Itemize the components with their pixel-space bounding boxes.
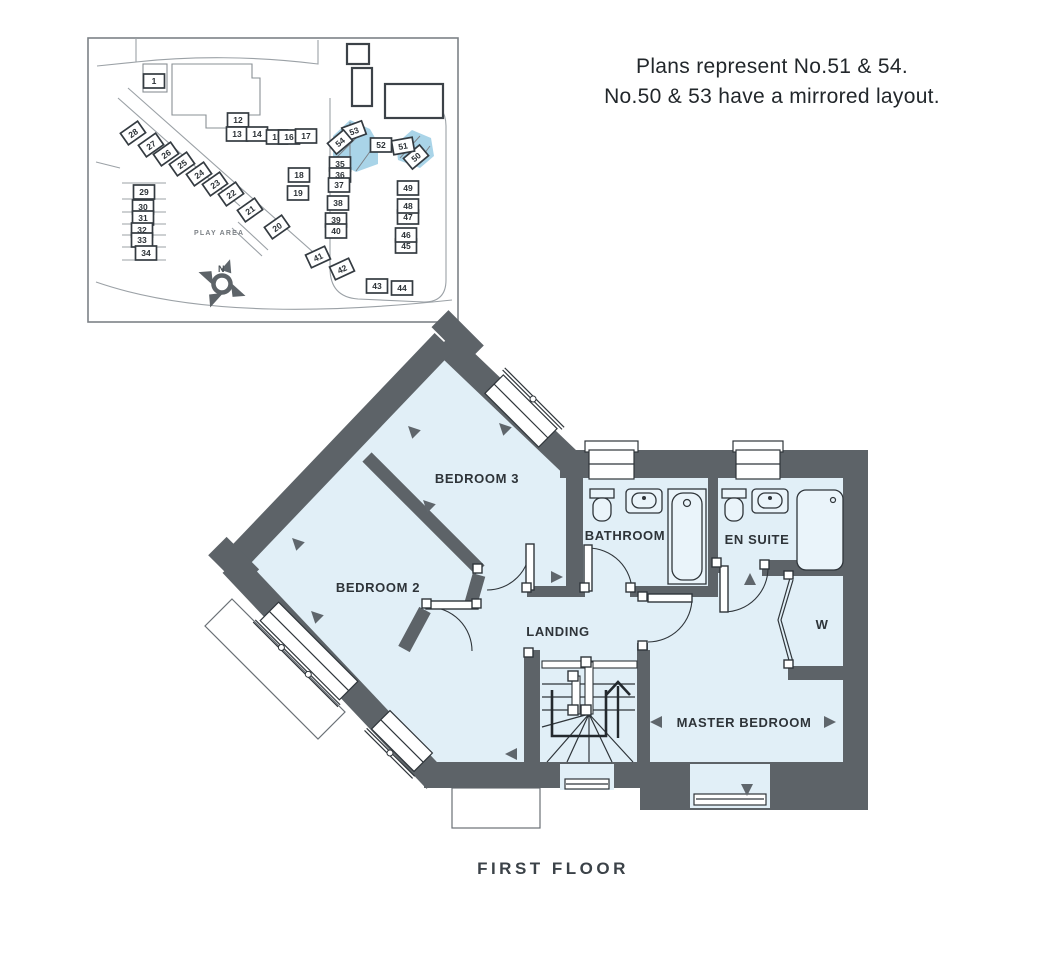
ensuite-toilet: [722, 489, 746, 521]
svg-text:48: 48: [403, 201, 413, 211]
svg-text:17: 17: [301, 131, 311, 141]
note-line-1: Plans represent No.51 & 54.: [636, 55, 908, 78]
svg-text:1: 1: [152, 76, 157, 86]
svg-text:40: 40: [331, 226, 341, 236]
svg-text:29: 29: [139, 187, 149, 197]
svg-text:46: 46: [401, 230, 411, 240]
svg-text:52: 52: [376, 140, 386, 150]
play-area-label: PLAY AREA: [194, 230, 244, 237]
bathroom-label: BATHROOM: [585, 528, 665, 543]
porch-outline: [452, 788, 540, 828]
site-plot-13: 13: [227, 127, 248, 141]
landing-label: LANDING: [526, 624, 589, 639]
svg-text:33: 33: [137, 235, 147, 245]
svg-text:34: 34: [141, 248, 151, 258]
site-plan: 1121314151617181920212223242526272829303…: [88, 38, 458, 322]
bathroom-window: [585, 441, 638, 479]
site-plot-40: 40: [326, 224, 347, 238]
svg-text:16: 16: [284, 132, 294, 142]
floorplan-page: Plans represent No.51 & 54. No.50 & 53 h…: [0, 0, 1060, 960]
ensuite-window: [733, 441, 783, 479]
master-bedroom-label: MASTER BEDROOM: [677, 715, 812, 730]
ensuite-sink: [752, 489, 788, 513]
svg-text:13: 13: [232, 129, 242, 139]
wardrobe-label: W: [816, 617, 829, 632]
svg-text:19: 19: [293, 188, 303, 198]
svg-text:51: 51: [398, 140, 409, 152]
bedroom2-label: BEDROOM 2: [336, 580, 420, 595]
site-plot-29: 29: [134, 185, 155, 199]
site-plot-49: 49: [398, 181, 419, 195]
site-plot-52: 52: [371, 138, 392, 152]
north-label: N: [218, 264, 225, 274]
bathtub: [668, 489, 706, 584]
site-plot-33: 33: [132, 233, 153, 247]
svg-text:43: 43: [372, 281, 382, 291]
svg-text:49: 49: [403, 183, 413, 193]
site-plot-17: 17: [296, 129, 317, 143]
site-plot-38: 38: [328, 196, 349, 210]
shower: [797, 490, 843, 570]
svg-text:37: 37: [334, 180, 344, 190]
bathroom-sink: [626, 489, 662, 513]
first-floor-plan: BEDROOM 3 BEDROOM 2 BATHROOM EN SUITE LA…: [205, 310, 868, 828]
site-plot-1: 1: [144, 74, 165, 88]
site-plot-51: 51: [391, 137, 414, 154]
site-plot-34: 34: [136, 246, 157, 260]
site-plot-43: 43: [367, 279, 388, 293]
site-plot-46: 46: [396, 228, 417, 242]
site-plot-14: 14: [247, 127, 268, 141]
svg-text:31: 31: [138, 213, 148, 223]
svg-text:44: 44: [397, 283, 407, 293]
site-plot-18: 18: [289, 168, 310, 182]
plans-note: Plans represent No.51 & 54. No.50 & 53 h…: [604, 55, 940, 108]
floor-caption: FIRST FLOOR: [477, 859, 629, 878]
ensuite-label: EN SUITE: [725, 532, 790, 547]
site-plot-37: 37: [329, 178, 350, 192]
note-line-2: No.50 & 53 have a mirrored layout.: [604, 85, 940, 108]
svg-text:38: 38: [333, 198, 343, 208]
svg-text:18: 18: [294, 170, 304, 180]
bedroom3-label: BEDROOM 3: [435, 471, 519, 486]
site-plot-12: 12: [228, 113, 249, 127]
bathroom-toilet: [590, 489, 614, 521]
site-plot-19: 19: [288, 186, 309, 200]
site-plot-48: 48: [398, 199, 419, 213]
svg-text:12: 12: [233, 115, 243, 125]
site-plot-44: 44: [392, 281, 413, 295]
svg-text:14: 14: [252, 129, 262, 139]
